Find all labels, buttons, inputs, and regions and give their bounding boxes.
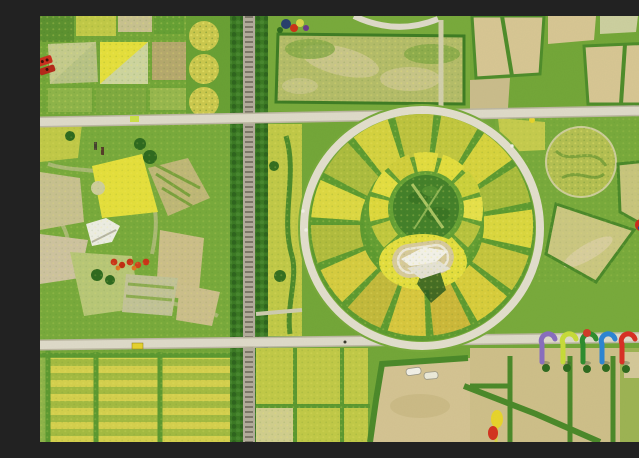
aerial-photo: Top-down aerial view of flower fields wi… (40, 16, 639, 442)
photo-grain-overlay (40, 16, 639, 442)
aerial-photo-canvas (40, 16, 639, 442)
